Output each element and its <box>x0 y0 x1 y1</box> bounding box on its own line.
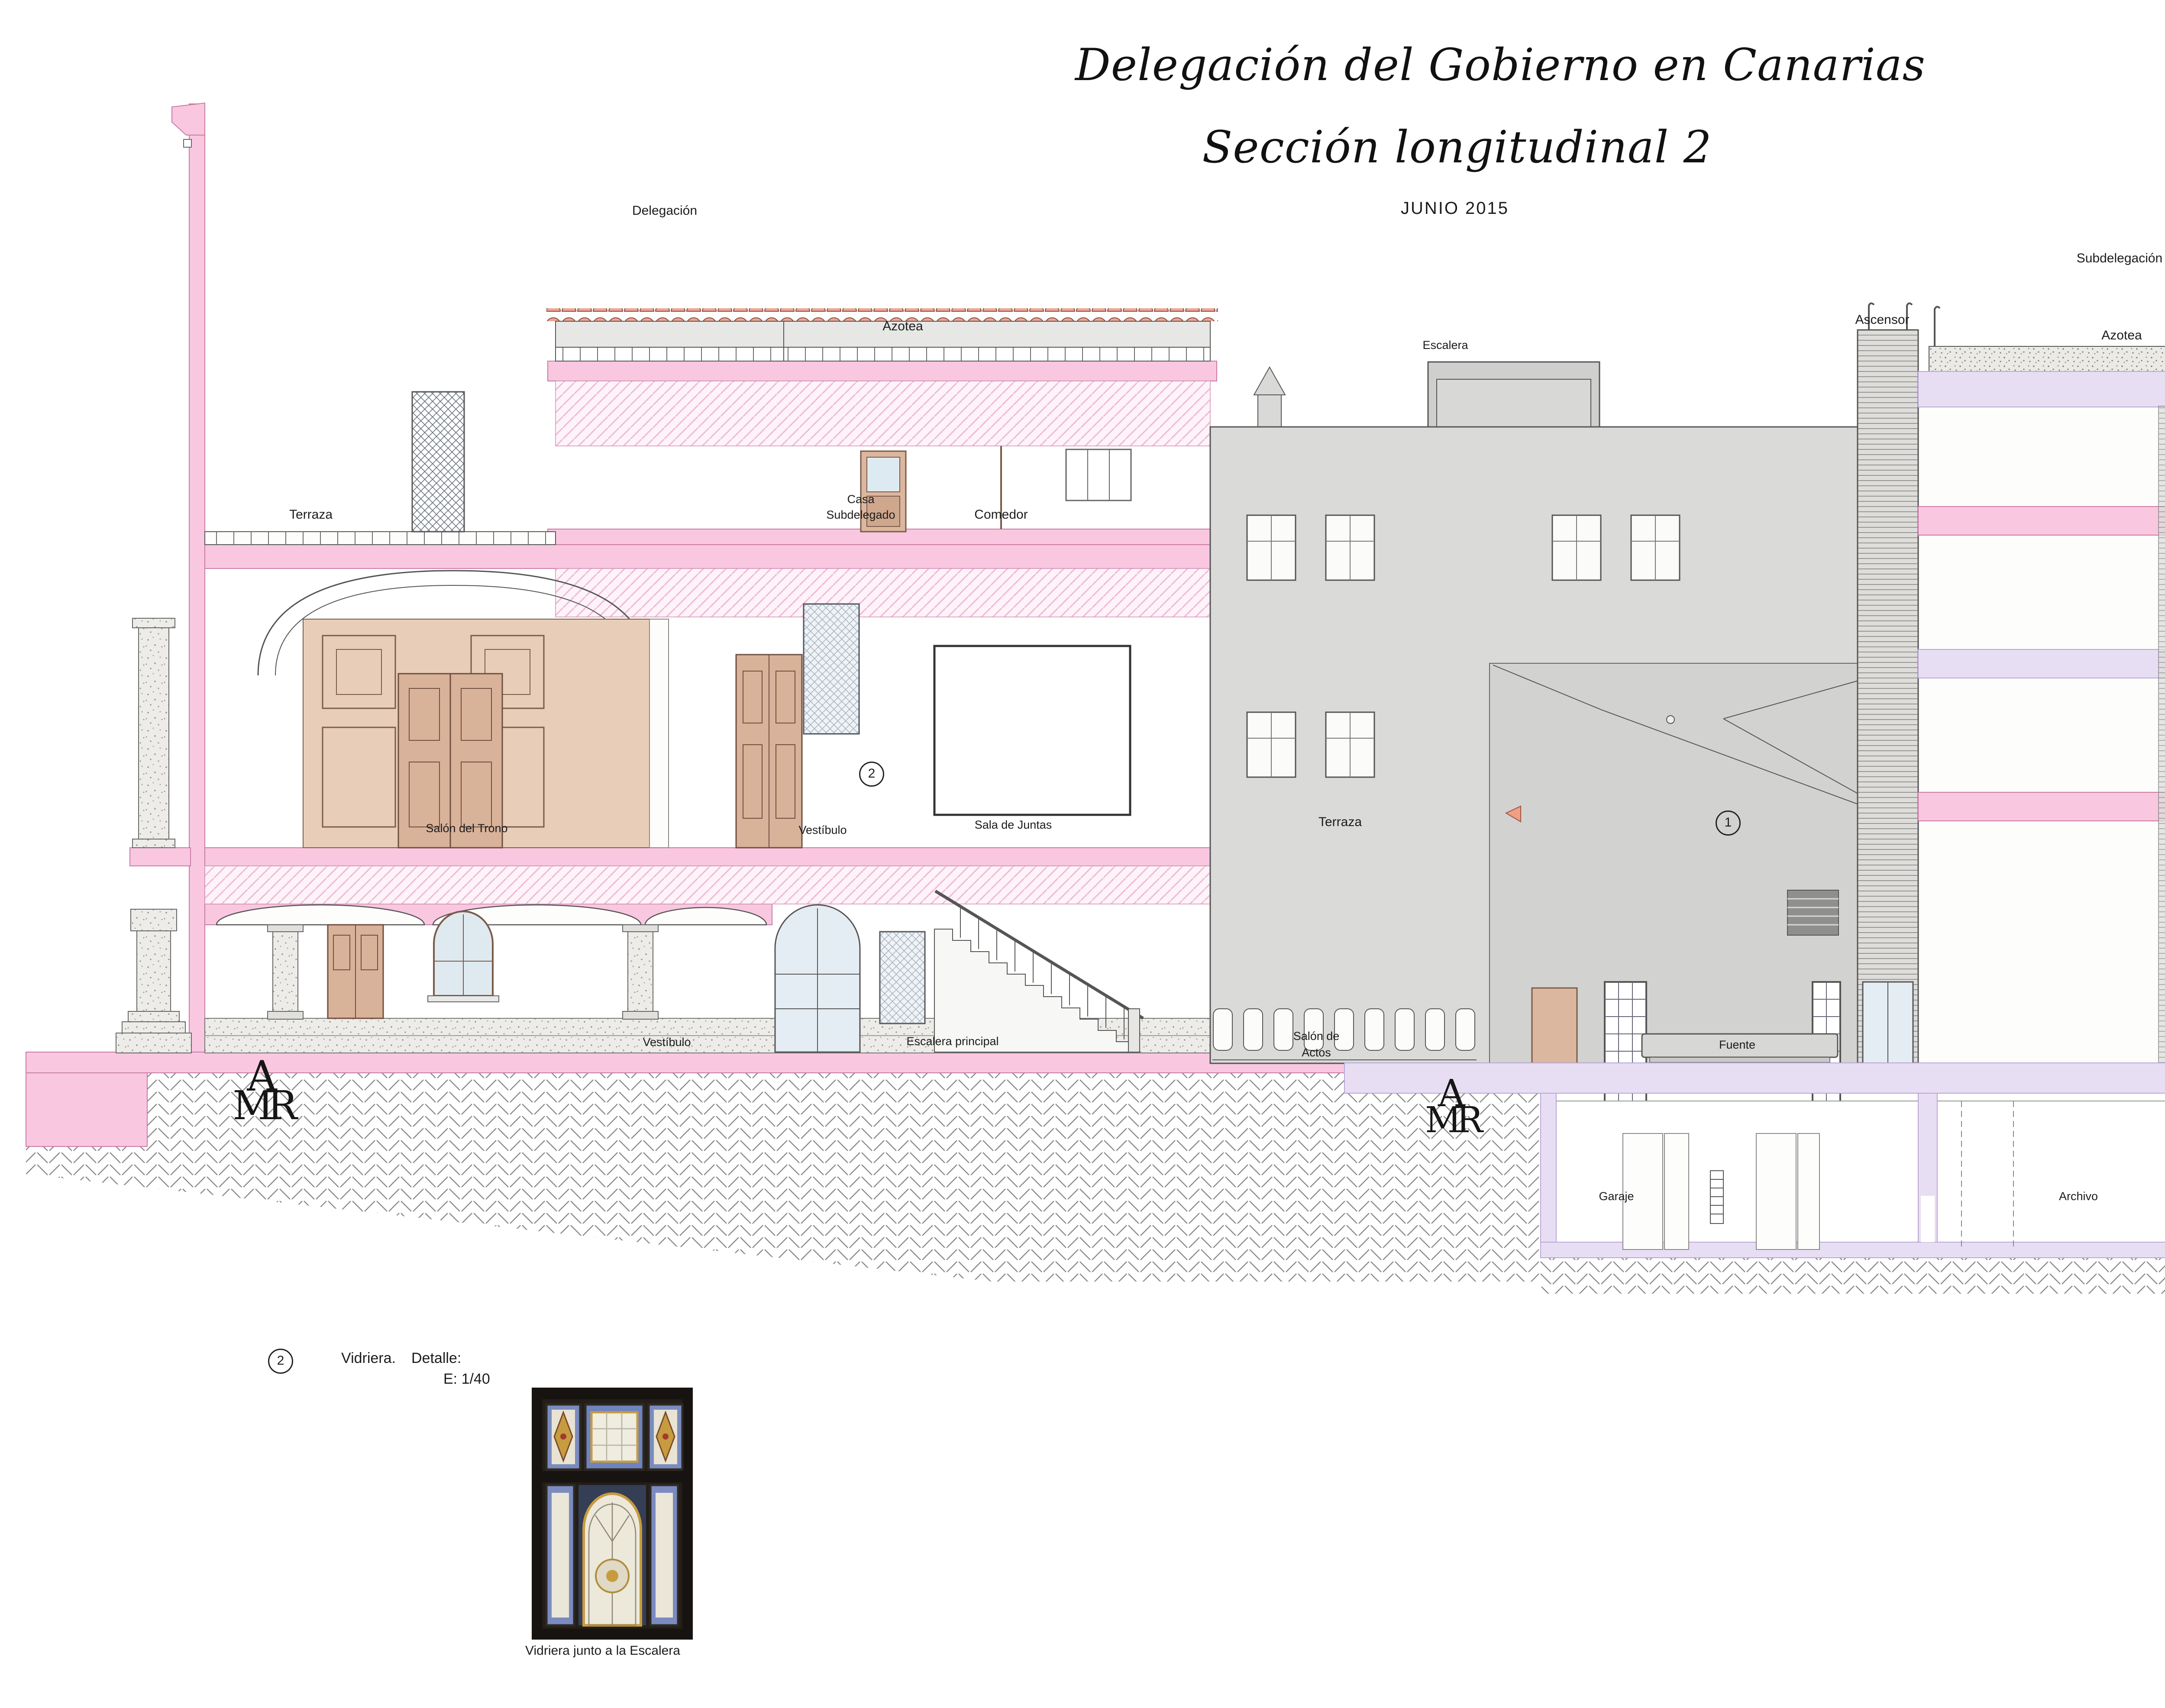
note2-scale: E: 1/40 <box>443 1371 490 1388</box>
label-escalera-principal: Escalera principal <box>906 1035 998 1048</box>
label-salon-de-actos-2: Actos <box>1302 1046 1331 1059</box>
label-salon-del-trono: Salón del Trono <box>426 822 507 835</box>
label-azotea-left: Azotea <box>882 319 923 334</box>
label-subdelegacion: Subdelegación <box>2077 251 2163 266</box>
central-gray-block <box>1210 362 1923 1120</box>
sheet-subtitle: Sección longitudinal 2 <box>1202 122 1712 173</box>
label-fuente: Fuente <box>1719 1038 1755 1052</box>
label-ascensor: Ascensor <box>1855 313 1909 328</box>
label-comedor: Comedor <box>974 507 1028 523</box>
label-salon-de-actos-1: Salón de <box>1293 1030 1340 1043</box>
note2-marker: 2 <box>268 1349 293 1374</box>
label-garaje: Garaje <box>1599 1190 1634 1203</box>
marker-toldo-section: 1 <box>1716 810 1741 836</box>
vidriera-caption: Vidriera junto a la Escalera <box>525 1643 680 1659</box>
left-building <box>26 103 1346 1146</box>
sheet-title: Delegación del Gobierno en Canarias <box>1075 40 1926 90</box>
marker-vidriera-section: 2 <box>859 762 884 787</box>
label-archivo-1: Archivo <box>2059 1190 2098 1203</box>
label-delegacion: Delegación <box>632 203 697 219</box>
label-vestibulo-principal: Vestíbulo <box>798 823 847 837</box>
amr-monogram-left: A MR <box>229 1062 294 1120</box>
elevator-shaft <box>1858 303 1918 1063</box>
sheet-date: JUNIO 2015 <box>1401 198 1509 218</box>
label-azotea-right: Azotea <box>2101 328 2142 343</box>
section-drawing <box>0 0 2165 1708</box>
label-terraza-left: Terraza <box>289 507 333 523</box>
label-escalera: Escalera <box>1422 339 1468 352</box>
amr-mr: MR <box>229 1091 294 1120</box>
note2-title: Vidriera. <box>341 1350 396 1367</box>
label-sala-de-juntas: Sala de Juntas <box>975 818 1052 832</box>
amr-monogram-center: A MR <box>1421 1081 1482 1133</box>
label-vestibulo-ground: Vestíbulo <box>643 1036 691 1049</box>
sheet: Delegación del Gobierno en Canarias Secc… <box>0 0 2165 1708</box>
label-casa-subdelegado-1: Casa <box>847 493 874 506</box>
stained-glass-photo <box>532 1388 693 1640</box>
label-terraza-center: Terraza <box>1318 815 1362 830</box>
label-casa-subdelegado-2: Subdelegado <box>826 508 895 522</box>
note2-detail: Detalle: <box>411 1350 461 1367</box>
